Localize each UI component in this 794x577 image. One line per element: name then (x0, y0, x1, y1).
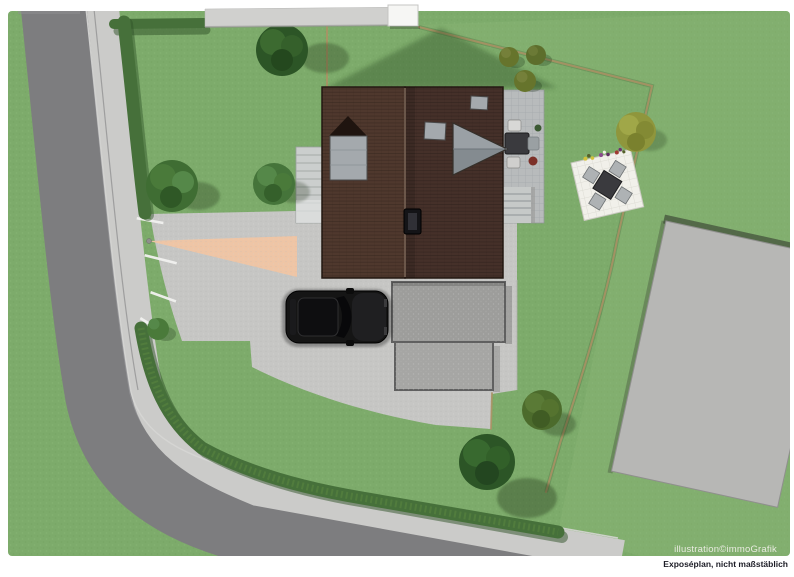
tree-back-garden (256, 24, 308, 76)
pad-shadow (493, 346, 500, 392)
pavement-edge-line (491, 393, 492, 429)
tree-driveway-left (146, 160, 198, 212)
bollard (147, 239, 152, 244)
car-hood (352, 293, 386, 341)
car-mirror (346, 288, 354, 294)
terrace-step-side-shadow (531, 187, 535, 223)
credit-illustration: illustration©immoGrafik (674, 544, 777, 555)
car-headlight (384, 327, 387, 335)
terrace-chair (528, 137, 539, 150)
car-headlight (384, 299, 387, 307)
car-rear-window (290, 299, 296, 335)
pad-shadow (505, 286, 512, 344)
house-roof (322, 87, 507, 278)
neighbor-area-top (205, 5, 420, 29)
terrace-chair (507, 157, 520, 168)
garage-pad-upper-texture (392, 282, 505, 342)
garage-forecourt (392, 282, 512, 392)
road-top-shadow (18, 11, 80, 14)
roof-dormer (330, 136, 367, 180)
chimney-flue (408, 213, 417, 230)
neighbor-building-top (388, 5, 418, 26)
tree-shadow (301, 43, 349, 73)
car-roof (298, 298, 338, 336)
tree-front-lawn (459, 434, 515, 490)
terrace (503, 90, 544, 223)
terrace-plant-green (535, 125, 542, 132)
garage-pad-lower-texture (395, 342, 493, 390)
pad-top-shade (392, 282, 505, 286)
tree-driveway-right (253, 163, 295, 205)
terrace-plant-red (529, 157, 538, 166)
site-plan-illustration: illustration©immoGrafik Exposéplan, nich… (0, 0, 794, 577)
skylight (470, 96, 488, 110)
car (282, 288, 392, 347)
terrace-steps (503, 187, 531, 223)
neighbor-pavement (205, 7, 418, 27)
terrace-table (505, 133, 529, 154)
skylight (424, 122, 446, 140)
tree-shadow (497, 478, 557, 518)
ridge-shade (405, 87, 415, 278)
tree-side-lawn (522, 390, 562, 430)
car-mirror (346, 340, 354, 346)
entrance-landing (296, 200, 323, 223)
terrace-chair (508, 120, 521, 131)
neighbor-building-top-shadow (390, 26, 420, 29)
credit-disclaimer: Exposéplan, nicht maßstäblich (663, 559, 788, 569)
site-plan-canvas: illustration©immoGrafik Exposéplan, nich… (0, 0, 794, 577)
